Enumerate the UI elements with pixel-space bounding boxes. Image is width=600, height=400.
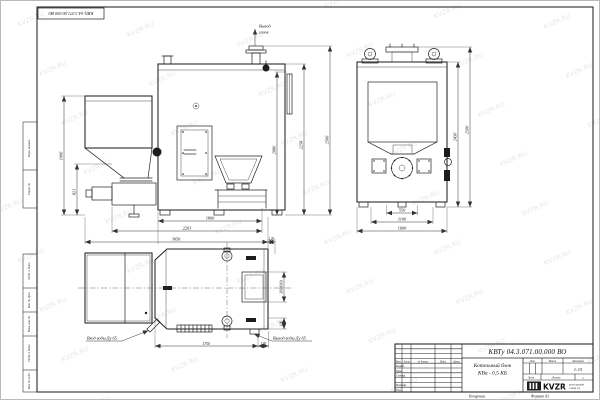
margin-label-podp-data-1: Подп. и дата (27, 262, 31, 281)
plan-dim-length: 1750 (202, 342, 210, 346)
front-dim-bottom-outer: 1600 (398, 226, 407, 231)
side-dim-bottom-mid: 2263 (183, 226, 192, 231)
drawing-sheet: KVZR.RU КВТу 04.3.071.00.000 ВО Перв. пр… (0, 0, 600, 400)
tb-product-name-line1: Котельный блок (473, 362, 512, 369)
tb-row-tkontr: Т.контр. (396, 375, 406, 378)
side-dim-right-outer: 2500 (325, 135, 330, 144)
tb-masshtab-label: Масштаб (571, 360, 584, 363)
tb-product-name-line2: КВа - 0,5 КБ (477, 371, 508, 377)
tb-row-nkontr: Н.контр. (395, 384, 407, 387)
tb-col-data: Дата (452, 360, 460, 363)
side-dim-right-inner: 2086 (272, 145, 277, 154)
water-inlet-label: Вход воды Ду 65 (87, 336, 118, 341)
margin-label-sprav-no: Справ. № (27, 183, 31, 195)
tb-scale-value: 1:15 (574, 367, 583, 372)
tb-row-prov: Пров. (395, 370, 403, 373)
margin-label-inv-dubl: Инв. № дубл. (27, 292, 31, 310)
front-dim-right-inner: 2430 (453, 132, 458, 141)
tb-col-list: Лист (402, 360, 409, 363)
plan-dim-offset: 195 (261, 342, 267, 346)
tb-doc-number: КВТу 04.3.071.00.000 ВО (488, 348, 567, 356)
tb-list-label: Лист (527, 377, 534, 380)
tb-row-razrab: Разраб. (395, 365, 405, 368)
stamp-doc-number: КВТу 04.3.071.00.000 ВО (48, 11, 94, 16)
drawing-canvas: KVZR.RU КВТу 04.3.071.00.000 ВО Перв. пр… (0, 0, 600, 400)
tb-row-utv: Утв. (396, 389, 402, 392)
kvzr-logo-sub2: ЗАВОД РФ (569, 387, 580, 390)
side-dim-right-mid: 2258 (299, 140, 304, 149)
water-outlet-label: Выход воды Ду 65 (273, 336, 307, 341)
plan-dim-chimney: 200(600) (280, 280, 284, 294)
plan-dim-right-small: 100 (280, 321, 284, 327)
front-dim-bottom-mid: 1100 (398, 217, 407, 222)
side-dim-feeder-height: 821 (72, 189, 77, 195)
front-dim-bottom-inner: 550 (399, 208, 406, 213)
tb-col-izm: Изм. (395, 360, 402, 363)
margin-label-podp-data-2: Подп. и дата (27, 344, 31, 363)
tb-listov-label: Листов (551, 377, 562, 380)
front-dim-right-outer: 2500 (465, 125, 470, 134)
kvzr-logo-text: KVZR (543, 383, 566, 392)
side-dim-bottom-outer: 3050 (172, 237, 181, 242)
tb-massa-label: Масса (548, 360, 557, 363)
gas-outlet-label-line2: газов (259, 30, 269, 35)
side-dim-bottom-inner: 1800 (206, 216, 215, 221)
gas-outlet-label-line1: Выход (259, 24, 271, 29)
copied-label: Копировал (468, 395, 486, 399)
tb-col-podp: Подп. (439, 360, 447, 363)
margin-label-vzam-inv: Взам. инв. № (27, 316, 31, 333)
margin-label-inv-podl: Инв. № подл. (27, 372, 31, 390)
tb-lit-label: Лит. (529, 360, 536, 363)
side-dim-hopper-height: 1900 (59, 151, 64, 160)
plan-dim-top: 120 (269, 237, 275, 241)
tb-col-dokum: № докум. (417, 360, 429, 363)
margin-label-perv-primen: Перв. примен. (27, 139, 31, 158)
format-label: Формат А3 (531, 395, 549, 399)
